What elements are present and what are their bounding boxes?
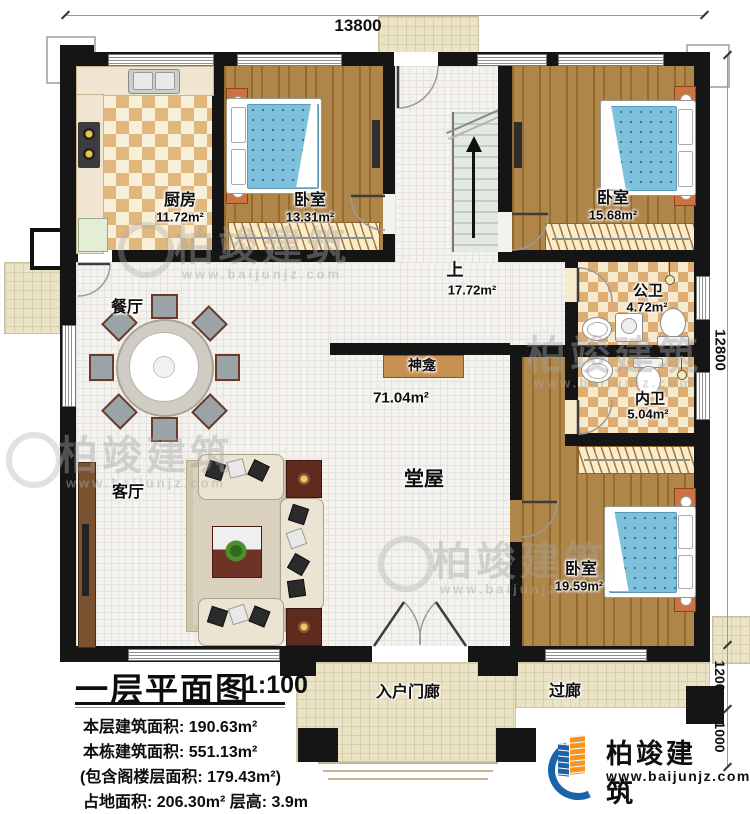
- stove-burner: [83, 128, 95, 140]
- info-line-floor-area: 本层建筑面积: 190.63m²: [83, 713, 257, 737]
- title-underline: [75, 702, 285, 705]
- main-door-right-arc: [420, 602, 436, 645]
- info-line-attic-area: (包含阁楼层面积: 179.43m²): [80, 763, 281, 787]
- kitchen-door-arc: [78, 264, 110, 296]
- pillow: [231, 149, 246, 185]
- logo-building-blue-icon: [558, 743, 569, 776]
- corridor-label: 过廊: [549, 677, 581, 701]
- kitchen-sink-basin: [133, 72, 153, 90]
- kitchen-area: 11.72m²: [156, 210, 204, 225]
- watermark-logo-icon: [118, 222, 174, 278]
- entry-porch-label: 入户门廊: [376, 678, 440, 702]
- pillow: [678, 109, 693, 145]
- light-pull: [669, 262, 670, 275]
- light-pull-knob: [665, 275, 675, 285]
- dimension-top-value: 13800: [334, 16, 381, 36]
- kitchen-sink-basin: [155, 72, 175, 90]
- light-pull-knob: [677, 370, 687, 380]
- bedroom2-label: 卧室: [597, 184, 629, 208]
- blanket-fold: [285, 104, 317, 187]
- blanket-fold: [609, 512, 639, 591]
- logo-building-orange-icon: [570, 735, 585, 775]
- inner-bath-label: 内卫: [635, 388, 665, 409]
- blanket-fold: [605, 106, 637, 189]
- floor-plan: 柏竣建筑 www.baijunjz.com 柏竣建筑 www.baijunjz.…: [0, 0, 750, 814]
- plant: [223, 538, 249, 564]
- dining-chair: [151, 417, 178, 442]
- plan-scale: 1:100: [244, 671, 308, 700]
- bedroom3-door-arc: [522, 502, 557, 537]
- bed: [226, 98, 322, 194]
- logo-website: www.baijunjz.com: [606, 768, 750, 784]
- living-tv: [82, 524, 89, 596]
- dimension-line-top: [65, 15, 705, 16]
- bedroom2-tv: [514, 122, 522, 168]
- publicbath-door-arc: [578, 268, 612, 302]
- company-logo: 柏竣建筑 www.baijunjz.com: [548, 730, 724, 798]
- stair-label: 上: [447, 256, 464, 281]
- light-pull: [681, 358, 682, 370]
- back-door-arc: [398, 66, 438, 108]
- bed: [600, 100, 696, 196]
- bathroom-sink: [581, 358, 613, 383]
- dimension-right-mid-value: 1200: [712, 660, 728, 691]
- pillow: [231, 107, 246, 143]
- info-line-land-area: 占地面积: 206.30m² 层高: 3.9m: [83, 788, 308, 812]
- dimension-right-upper-value: 12800: [712, 329, 729, 371]
- bedroom1-tv: [372, 120, 380, 168]
- bedroom1-door-arc: [351, 196, 385, 230]
- inner-bath-area: 5.04m²: [627, 407, 668, 422]
- main-door-left-leaf: [374, 602, 404, 646]
- bathroom-sink: [582, 317, 612, 341]
- bedroom2-door-arc: [512, 214, 548, 250]
- title-underline-thin: [75, 707, 285, 708]
- bed: [604, 506, 696, 598]
- pillow: [678, 555, 693, 589]
- stair-area: 17.72m²: [448, 283, 496, 298]
- bedroom2-area: 15.68m²: [589, 208, 637, 223]
- bedroom1-label: 卧室: [294, 186, 326, 210]
- hall-label: 堂屋: [404, 463, 444, 492]
- bedroom3-area: 19.59m²: [555, 579, 603, 594]
- toilet-tank: [657, 336, 689, 346]
- innerbath-door-arc: [578, 400, 612, 434]
- info-line-building-area: 本栋建筑面积: 551.13m²: [83, 738, 257, 762]
- side-table: [286, 608, 322, 646]
- bedroom3-label: 卧室: [565, 555, 597, 579]
- pillow: [678, 515, 693, 549]
- stove-burner: [83, 148, 95, 160]
- dining-chair: [215, 354, 240, 381]
- dining-table-center: [153, 356, 175, 378]
- pillow: [678, 151, 693, 187]
- main-door-right-leaf: [436, 602, 466, 646]
- sofa-pillow: [287, 579, 306, 598]
- living-label: 客厅: [112, 478, 144, 502]
- public-bath-area: 4.72m²: [626, 300, 667, 315]
- watermark-logo-icon: [6, 432, 62, 488]
- public-bath-label: 公卫: [633, 280, 663, 301]
- dining-chair: [151, 294, 178, 319]
- main-door-left-arc: [404, 602, 420, 645]
- dining-label: 餐厅: [111, 293, 143, 317]
- bedroom1-area: 13.31m²: [286, 210, 334, 225]
- washing-machine-drum: [621, 318, 637, 334]
- hall-area: 71.04m²: [373, 390, 429, 407]
- kitchen-label: 厨房: [164, 186, 196, 210]
- dining-chair: [89, 354, 114, 381]
- watermark-logo-icon: [378, 536, 434, 592]
- shrine-label: 神龛: [408, 355, 436, 375]
- side-table: [286, 460, 322, 498]
- kitchen-fridge: [78, 218, 108, 252]
